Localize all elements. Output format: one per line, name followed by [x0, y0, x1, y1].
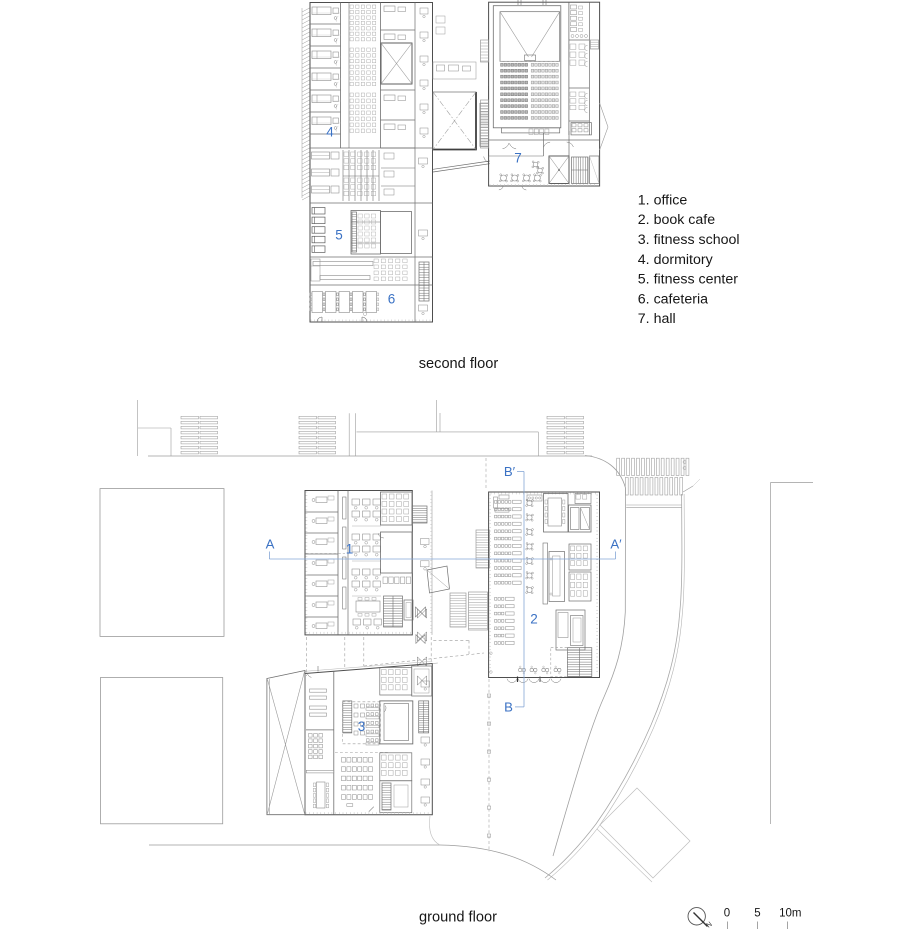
svg-text:7. hall: 7. hall	[638, 311, 676, 327]
svg-text:2. book cafe: 2. book cafe	[638, 212, 715, 228]
svg-text:A: A	[266, 537, 275, 552]
svg-text:1. office: 1. office	[638, 192, 688, 208]
svg-text:second floor: second floor	[419, 356, 499, 372]
svg-text:10m: 10m	[779, 908, 801, 920]
svg-text:4: 4	[326, 125, 334, 140]
svg-text:1: 1	[346, 542, 354, 557]
svg-text:A′: A′	[610, 537, 622, 552]
svg-text:2: 2	[530, 612, 538, 627]
svg-text:ground floor: ground floor	[419, 910, 497, 926]
svg-text:3: 3	[358, 719, 366, 734]
svg-text:3. fitness school: 3. fitness school	[638, 232, 740, 248]
svg-text:5: 5	[754, 908, 760, 920]
svg-text:4. dormitory: 4. dormitory	[638, 252, 714, 268]
svg-text:B′: B′	[504, 464, 516, 479]
svg-text:5. fitness center: 5. fitness center	[638, 272, 738, 288]
svg-text:6. cafeteria: 6. cafeteria	[638, 291, 708, 307]
svg-text:0: 0	[724, 908, 730, 920]
svg-text:B: B	[504, 700, 513, 715]
svg-text:5: 5	[335, 228, 343, 243]
svg-text:6: 6	[388, 292, 396, 307]
svg-text:7: 7	[514, 151, 522, 166]
